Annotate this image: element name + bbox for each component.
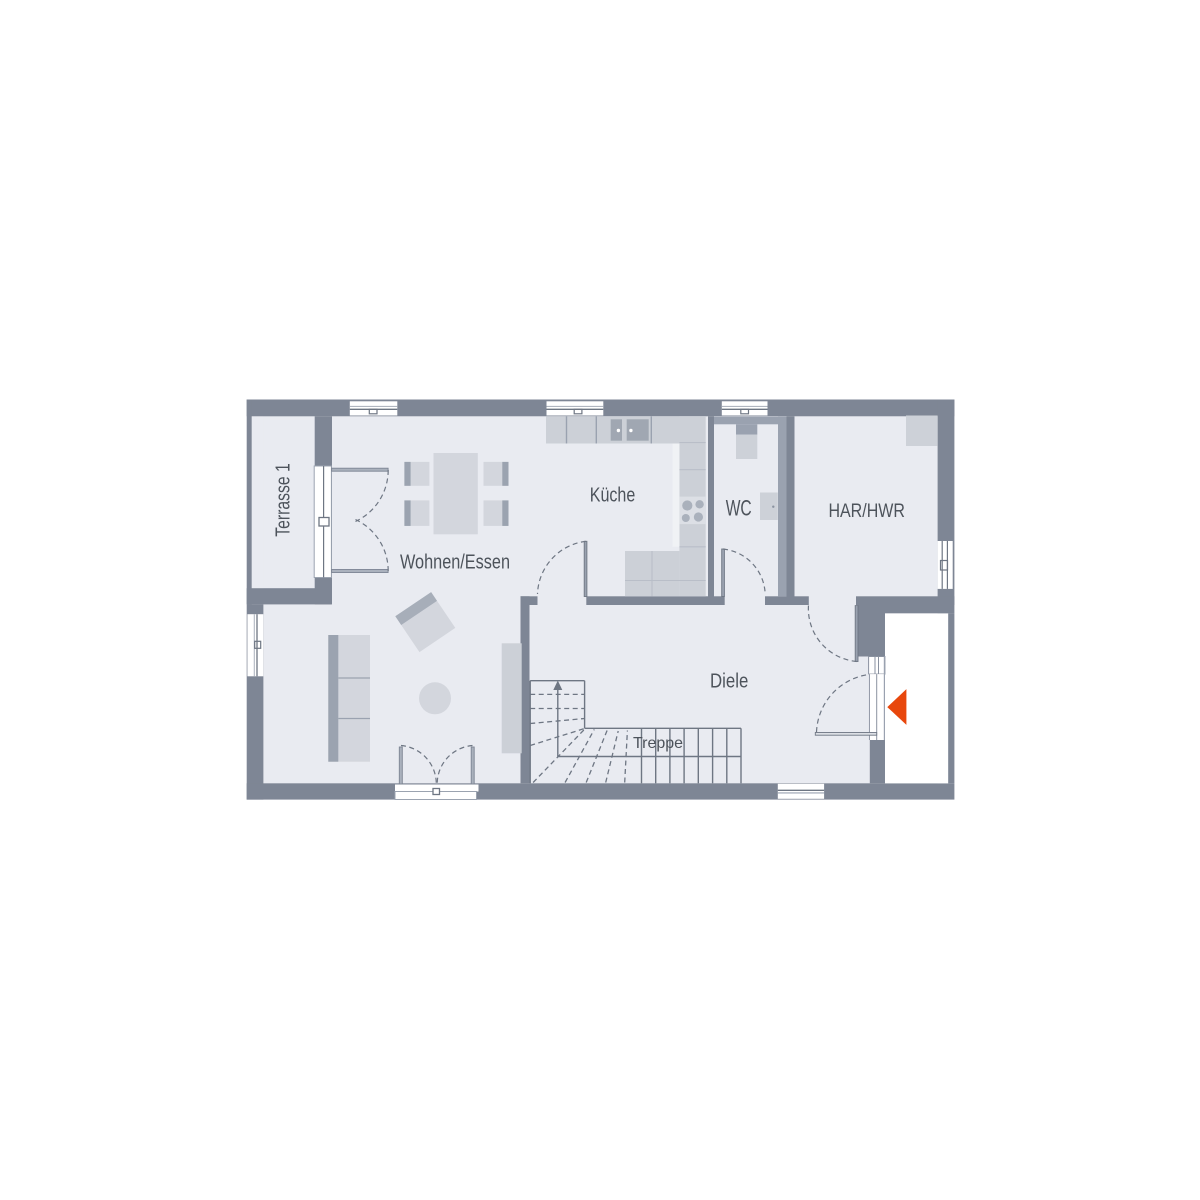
svg-text:Diele: Diele [710, 670, 748, 693]
svg-text:Küche: Küche [590, 484, 636, 507]
svg-text:WC: WC [726, 496, 752, 521]
svg-text:Treppe: Treppe [633, 735, 683, 752]
svg-text:HAR/HWR: HAR/HWR [828, 501, 905, 522]
svg-text:Wohnen/Essen: Wohnen/Essen [400, 551, 510, 574]
svg-text:Terrasse 1: Terrasse 1 [272, 463, 295, 536]
